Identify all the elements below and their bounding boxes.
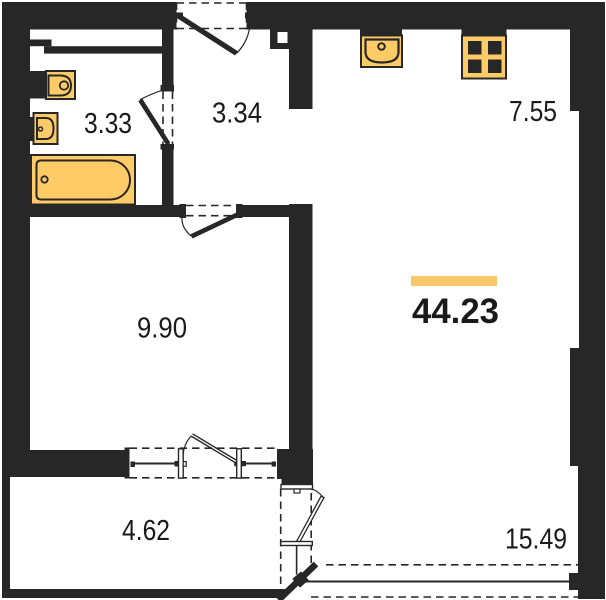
svg-text:3.33: 3.33: [84, 108, 132, 140]
svg-text:15.49: 15.49: [505, 524, 567, 556]
svg-text:4.62: 4.62: [122, 515, 170, 547]
svg-text:44.23: 44.23: [412, 291, 499, 331]
svg-text:3.34: 3.34: [212, 98, 262, 130]
svg-text:9.90: 9.90: [137, 313, 187, 345]
svg-text:7.55: 7.55: [509, 96, 557, 128]
